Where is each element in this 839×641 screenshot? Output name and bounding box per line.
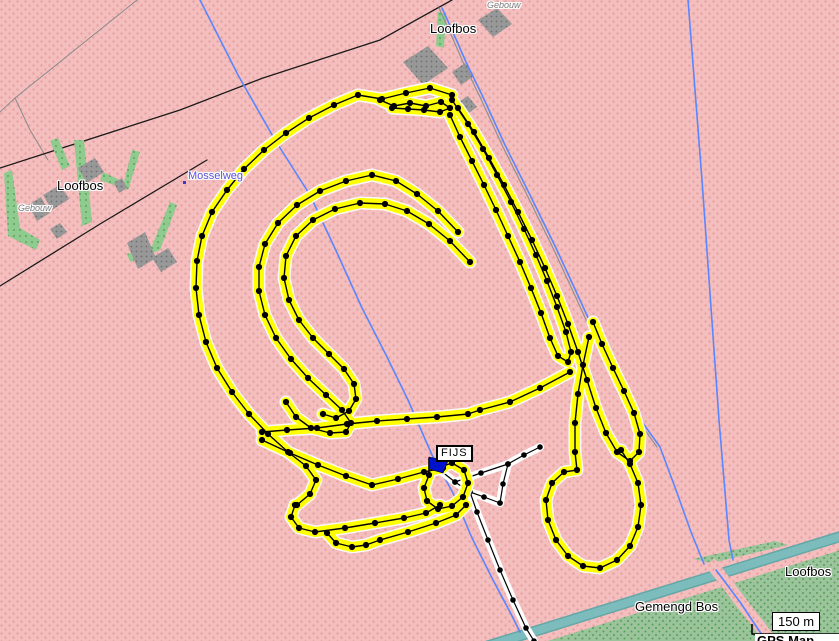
building-label-top: Gebouw <box>487 1 521 11</box>
forest-label-bottom-right: Loofbos <box>785 565 831 579</box>
waypoint-label-fijs[interactable]: FIJS <box>436 445 473 462</box>
building-label-left: Gebouw <box>18 204 52 214</box>
map-svg[interactable] <box>0 0 839 641</box>
mixed-forest-label: Gemengd Bos <box>635 600 718 614</box>
forest-label-top: Loofbos <box>430 22 476 36</box>
scale-bar-label: 150 m <box>772 612 820 631</box>
forest-label-left: Loofbos <box>57 179 103 193</box>
map-canvas[interactable]: Loofbos Loofbos Loofbos Gemengd Bos Moss… <box>0 0 839 641</box>
street-label-mosselweg: Mosselweg <box>188 170 243 182</box>
street-point-icon <box>183 181 186 184</box>
map-detail-overlay-text: GPS Map Deta <box>755 634 839 641</box>
